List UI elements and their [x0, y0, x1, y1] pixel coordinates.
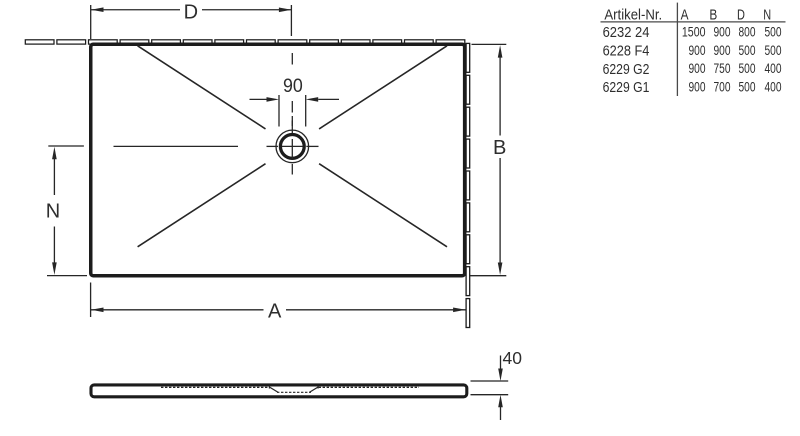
- svg-text:400: 400: [765, 60, 782, 76]
- svg-text:1500: 1500: [682, 24, 706, 40]
- svg-text:N: N: [46, 201, 60, 223]
- svg-text:900: 900: [689, 42, 706, 58]
- svg-text:500: 500: [739, 42, 756, 58]
- svg-text:40: 40: [503, 348, 523, 368]
- svg-text:900: 900: [714, 42, 731, 58]
- svg-text:D: D: [184, 2, 198, 24]
- svg-text:B: B: [493, 137, 506, 159]
- svg-text:900: 900: [714, 24, 731, 40]
- svg-text:6229 G1: 6229 G1: [603, 79, 650, 96]
- svg-text:900: 900: [689, 60, 706, 76]
- svg-text:6228 F4: 6228 F4: [603, 42, 650, 59]
- svg-text:750: 750: [714, 60, 731, 76]
- svg-text:Artikel-Nr.: Artikel-Nr.: [604, 7, 662, 24]
- svg-text:500: 500: [765, 42, 782, 58]
- svg-text:90: 90: [283, 76, 303, 97]
- svg-text:500: 500: [765, 24, 782, 40]
- svg-text:D: D: [737, 7, 745, 24]
- svg-text:6229 G2: 6229 G2: [603, 61, 650, 78]
- svg-text:800: 800: [739, 24, 756, 40]
- svg-text:500: 500: [739, 79, 756, 95]
- svg-text:6232 24: 6232 24: [603, 24, 650, 41]
- svg-text:N: N: [763, 7, 771, 24]
- svg-text:500: 500: [739, 60, 756, 76]
- svg-text:900: 900: [689, 79, 706, 95]
- svg-text:400: 400: [765, 79, 782, 95]
- svg-text:A: A: [268, 300, 282, 322]
- svg-text:700: 700: [714, 79, 731, 95]
- svg-text:A: A: [681, 7, 690, 24]
- svg-text:B: B: [709, 7, 717, 24]
